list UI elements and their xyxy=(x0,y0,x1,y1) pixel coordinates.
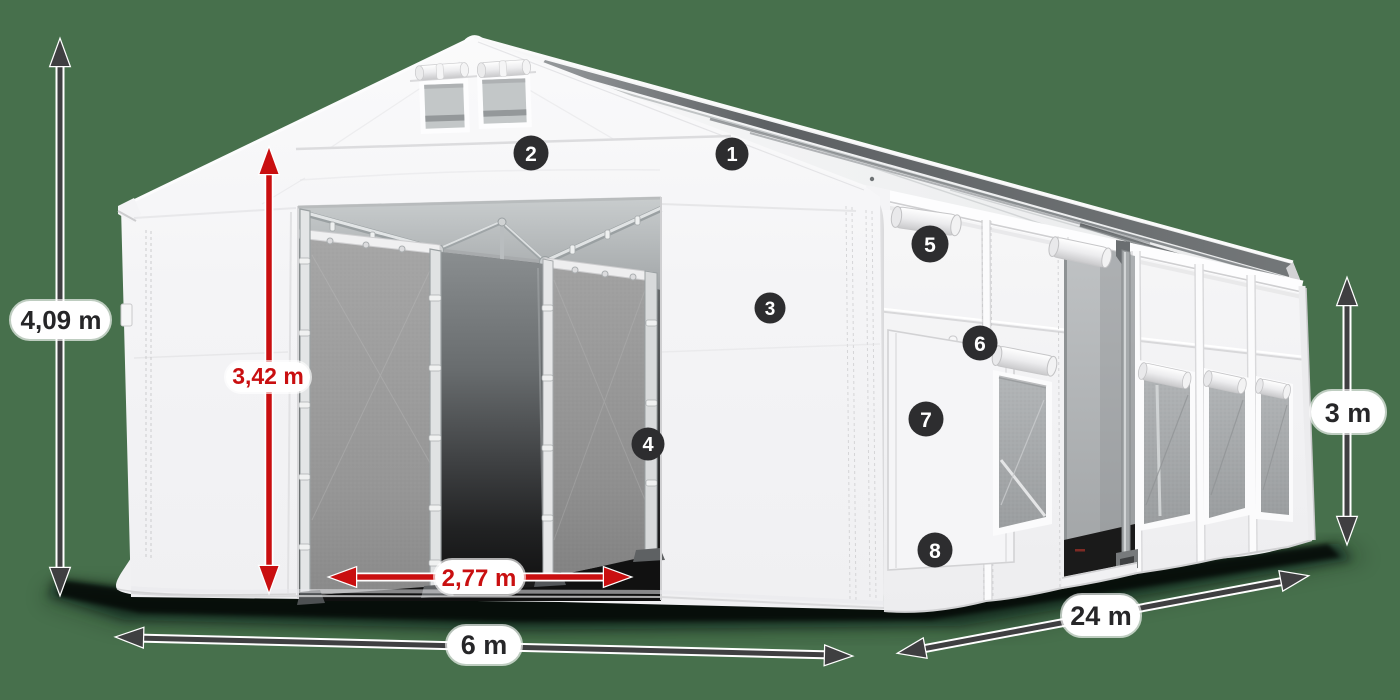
svg-text:3: 3 xyxy=(765,299,776,320)
svg-text:7: 7 xyxy=(920,409,932,432)
svg-text:6: 6 xyxy=(974,333,986,356)
svg-text:8: 8 xyxy=(929,540,941,563)
svg-text:1: 1 xyxy=(726,144,737,166)
svg-text:24 m: 24 m xyxy=(1070,601,1132,631)
svg-text:2,77 m: 2,77 m xyxy=(442,565,517,592)
svg-text:3 m: 3 m xyxy=(1325,398,1372,428)
svg-text:4: 4 xyxy=(642,434,654,456)
svg-text:5: 5 xyxy=(924,234,936,257)
svg-text:6 m: 6 m xyxy=(461,630,508,660)
svg-text:3,42 m: 3,42 m xyxy=(232,363,304,389)
svg-text:2: 2 xyxy=(525,143,537,166)
svg-text:4,09 m: 4,09 m xyxy=(21,305,102,335)
